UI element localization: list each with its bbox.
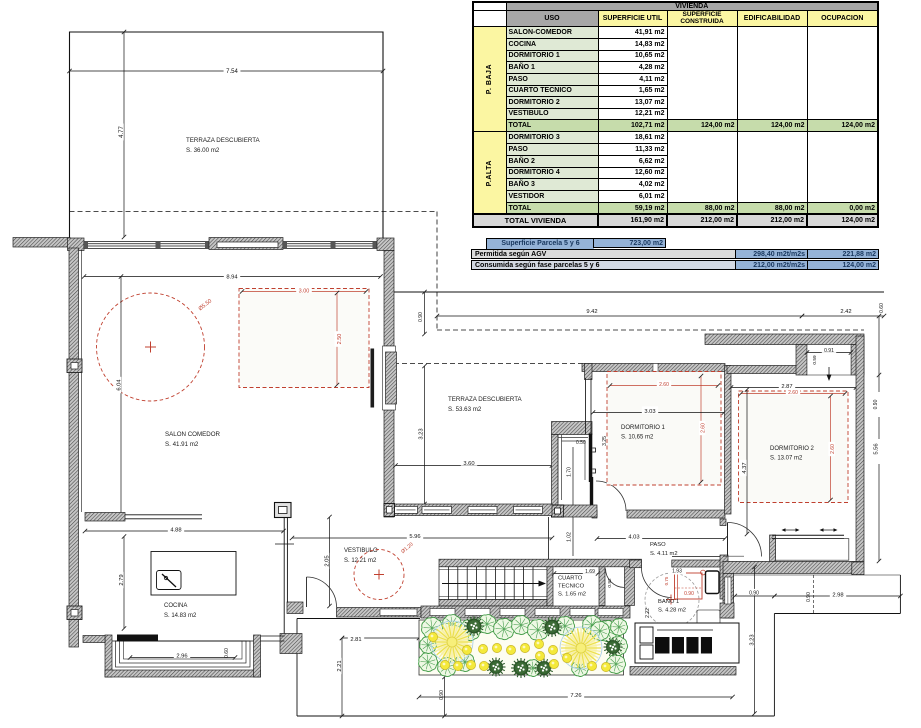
- svg-text:0.90: 0.90: [439, 690, 445, 700]
- svg-text:3.60: 3.60: [463, 461, 474, 467]
- svg-text:2.79: 2.79: [119, 574, 125, 585]
- svg-text:8.94: 8.94: [226, 274, 238, 280]
- svg-text:2.42: 2.42: [840, 309, 851, 315]
- svg-text:1.02: 1.02: [567, 532, 573, 542]
- svg-text:0.75: 0.75: [664, 576, 669, 585]
- svg-text:S. 12.21 m2: S. 12.21 m2: [344, 558, 377, 564]
- svg-text:2.81: 2.81: [350, 637, 361, 643]
- svg-text:7.26: 7.26: [570, 693, 581, 699]
- svg-text:S. 4.28 m2: S. 4.28 m2: [658, 608, 686, 614]
- svg-text:4.03: 4.03: [628, 534, 639, 540]
- svg-text:5.96: 5.96: [409, 534, 420, 540]
- svg-text:1.70: 1.70: [567, 467, 573, 477]
- svg-text:S. 53.63 m2: S. 53.63 m2: [448, 406, 482, 413]
- svg-text:S. 36.00 m2: S. 36.00 m2: [186, 147, 220, 154]
- svg-text:0.50: 0.50: [576, 440, 586, 446]
- svg-text:0.90: 0.90: [873, 399, 879, 409]
- svg-text:3.03: 3.03: [644, 409, 655, 415]
- svg-text:2.98: 2.98: [832, 592, 843, 598]
- svg-text:2.21: 2.21: [337, 660, 343, 671]
- svg-text:S. 13.07 m2: S. 13.07 m2: [770, 456, 803, 462]
- svg-text:2.96: 2.96: [176, 653, 187, 659]
- svg-text:3.25: 3.25: [602, 436, 608, 446]
- svg-text:0.90: 0.90: [749, 591, 759, 597]
- svg-text:1.69: 1.69: [585, 569, 595, 575]
- svg-text:2.50: 2.50: [337, 334, 343, 345]
- svg-text:4.77: 4.77: [119, 126, 125, 138]
- svg-text:0.59: 0.59: [812, 355, 818, 365]
- svg-text:PASO: PASO: [650, 542, 666, 548]
- svg-text:0.90: 0.90: [684, 591, 694, 597]
- svg-text:2.60: 2.60: [830, 444, 836, 454]
- svg-text:S. 4.11 m2: S. 4.11 m2: [650, 551, 678, 557]
- svg-text:S. 41.91 m2: S. 41.91 m2: [165, 441, 199, 448]
- svg-text:COCINA: COCINA: [164, 603, 187, 609]
- svg-text:0.90: 0.90: [418, 312, 424, 322]
- svg-text:0.91: 0.91: [824, 348, 834, 354]
- svg-text:Ø1.20: Ø1.20: [400, 541, 414, 554]
- svg-text:0.92: 0.92: [607, 578, 613, 588]
- svg-text:9.42: 9.42: [586, 309, 597, 315]
- svg-text:7.54: 7.54: [226, 69, 238, 75]
- svg-text:S. 10,65 m2: S. 10,65 m2: [621, 435, 654, 441]
- svg-text:BAÑO 1: BAÑO 1: [658, 598, 679, 605]
- svg-text:DORMITORIO 1: DORMITORIO 1: [621, 425, 666, 431]
- svg-text:2.60: 2.60: [701, 423, 707, 433]
- svg-text:CUARTO: CUARTO: [558, 576, 583, 582]
- svg-text:VESTIBULO: VESTIBULO: [344, 548, 378, 554]
- svg-text:Ø5.50: Ø5.50: [198, 298, 214, 312]
- svg-text:TERRAZA DESCUBIERTA: TERRAZA DESCUBIERTA: [186, 137, 261, 144]
- svg-text:TECNICO: TECNICO: [558, 584, 585, 590]
- svg-text:4.37: 4.37: [742, 462, 748, 473]
- svg-text:TERRAZA DESCUBIERTA: TERRAZA DESCUBIERTA: [448, 396, 523, 403]
- svg-text:0.60: 0.60: [224, 648, 230, 658]
- svg-text:S. 1.65 m2: S. 1.65 m2: [558, 592, 586, 598]
- svg-text:2.22: 2.22: [645, 608, 651, 618]
- svg-text:0.90: 0.90: [806, 592, 812, 602]
- svg-text:4.88: 4.88: [170, 527, 181, 533]
- svg-text:2.60: 2.60: [659, 382, 669, 388]
- svg-text:2.60: 2.60: [788, 390, 798, 396]
- svg-text:2.05: 2.05: [324, 555, 330, 566]
- svg-text:6.04: 6.04: [116, 379, 122, 391]
- svg-text:S. 14.83 m2: S. 14.83 m2: [164, 613, 197, 619]
- svg-text:3.00: 3.00: [299, 288, 310, 294]
- svg-text:5.56: 5.56: [873, 443, 879, 454]
- svg-text:DORMITORIO 2: DORMITORIO 2: [770, 446, 815, 452]
- svg-text:3.23: 3.23: [749, 634, 755, 645]
- svg-text:0.60: 0.60: [879, 303, 885, 313]
- svg-text:3.23: 3.23: [418, 428, 424, 439]
- svg-text:1.93: 1.93: [672, 569, 682, 575]
- svg-text:SALON COMEDOR: SALON COMEDOR: [165, 431, 221, 438]
